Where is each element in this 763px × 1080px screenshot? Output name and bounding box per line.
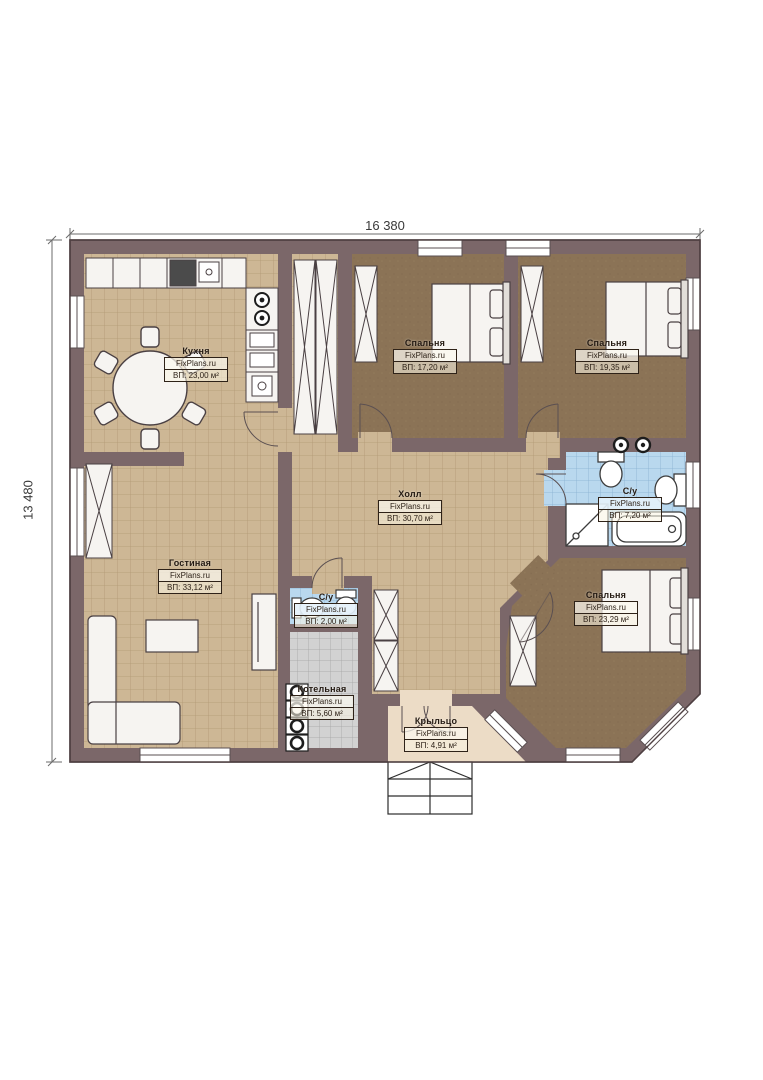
window-top-2 [506, 240, 550, 256]
watermark: FixPlans.ru [291, 696, 353, 708]
tv-stand [252, 594, 276, 670]
room-area: ВП: 33,12 м² [159, 582, 221, 593]
wardrobe-hall-1 [374, 590, 398, 640]
wardrobe-hall-2 [374, 641, 398, 691]
watermark: FixPlans.ru [405, 728, 467, 740]
wardrobe-bedroom-3 [510, 616, 536, 686]
window-right-bathroom [686, 462, 700, 508]
room-name: Спальня [574, 590, 638, 600]
room-name: Гостиная [158, 558, 222, 568]
watermark: FixPlans.ru [599, 498, 661, 510]
room-area: ВП: 19,35 м² [576, 362, 638, 373]
room-label-hall: Холл FixPlans.ru ВП: 30,70 м² [378, 489, 442, 525]
room-name: Спальня [575, 338, 639, 348]
wardrobe-bedroom-2 [521, 266, 543, 362]
window-top-1 [418, 240, 462, 256]
room-label-wc-small: С/у FixPlans.ru ВП: 2,00 м² [294, 592, 358, 628]
watermark: FixPlans.ru [379, 501, 441, 513]
room-label-living: Гостиная FixPlans.ru ВП: 33,12 м² [158, 558, 222, 594]
room-area: ВП: 17,20 м² [394, 362, 456, 373]
room-label-porch: Крыльцо FixPlans.ru ВП: 4,91 м² [404, 716, 468, 752]
room-name: Холл [378, 489, 442, 499]
room-name: Котельная [290, 684, 354, 694]
wardrobe-bedroom-1 [355, 266, 377, 362]
room-name: Спальня [393, 338, 457, 348]
wardrobe-corridor-2 [316, 260, 337, 434]
room-label-kitchen: Кухня FixPlans.ru ВП: 23,00 м² [164, 346, 228, 382]
window-bay-bottom [566, 748, 620, 762]
room-label-bedroom-2: Спальня FixPlans.ru ВП: 19,35 м² [575, 338, 639, 374]
dimension-width: 16 380 [365, 218, 405, 233]
wardrobe-corridor-1 [294, 260, 315, 434]
room-name: С/у [294, 592, 358, 602]
watermark: FixPlans.ru [165, 358, 227, 370]
room-label-bedroom-3: Спальня FixPlans.ru ВП: 23,29 м² [574, 590, 638, 626]
watermark: FixPlans.ru [295, 604, 357, 616]
toilet [598, 452, 624, 487]
room-label-bathroom: С/у FixPlans.ru ВП: 7,20 м² [598, 486, 662, 522]
watermark: FixPlans.ru [159, 570, 221, 582]
watermark: FixPlans.ru [576, 350, 638, 362]
room-name: Кухня [164, 346, 228, 356]
window-left-kitchen [70, 296, 84, 348]
room-label-boiler: Котельная FixPlans.ru ВП: 5,60 м² [290, 684, 354, 720]
room-area: ВП: 4,91 м² [405, 740, 467, 751]
porch-steps [388, 762, 472, 814]
window-bottom-living [140, 748, 230, 762]
room-area: ВП: 23,00 м² [165, 370, 227, 381]
room-label-bedroom-1: Спальня FixPlans.ru ВП: 17,20 м² [393, 338, 457, 374]
room-area: ВП: 23,29 м² [575, 614, 637, 625]
floor-plan: 16 380 13 480 Кухня FixPlans.ru ВП: 23,0… [0, 0, 763, 1080]
room-area: ВП: 5,60 м² [291, 708, 353, 719]
window-box-living-left [86, 464, 112, 558]
room-area: ВП: 2,00 м² [295, 616, 357, 627]
dimension-height: 13 480 [21, 480, 36, 520]
watermark: FixPlans.ru [394, 350, 456, 362]
watermark: FixPlans.ru [575, 602, 637, 614]
room-area: ВП: 7,20 м² [599, 510, 661, 521]
room-name: С/у [598, 486, 662, 496]
room-name: Крыльцо [404, 716, 468, 726]
room-area: ВП: 30,70 м² [379, 513, 441, 524]
coffee-table [146, 620, 198, 652]
window-left-living [70, 468, 84, 556]
floor-plan-drawing [0, 0, 763, 1080]
